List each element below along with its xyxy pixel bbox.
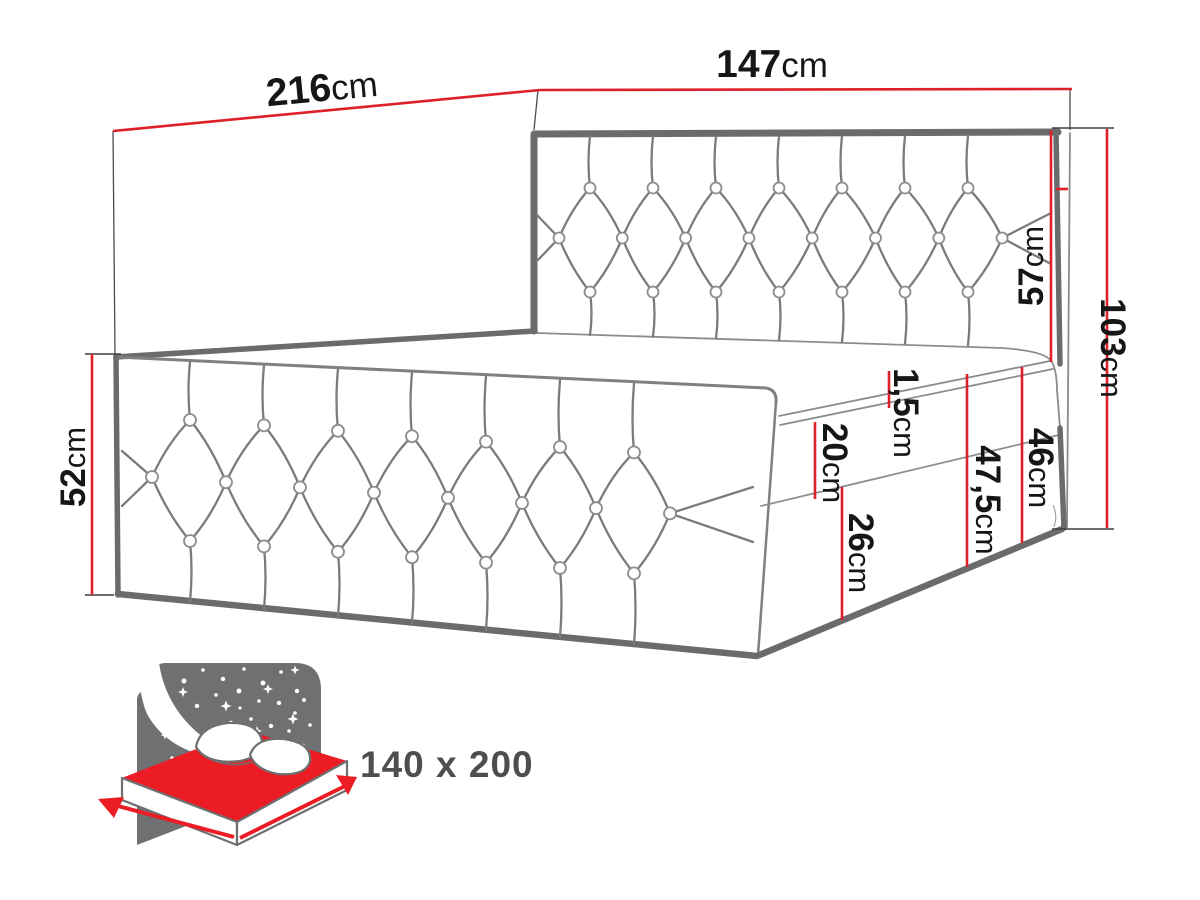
tuft-button	[837, 183, 848, 194]
tuft-seam-top	[633, 384, 635, 453]
tuft-button	[585, 287, 596, 298]
tuft-seam-top	[652, 136, 654, 188]
tuft-diamond-edge	[968, 188, 1002, 238]
tuft-diamond-edge	[374, 493, 412, 558]
side-panel-left-edge	[116, 356, 118, 595]
tuft-diamond-edge	[939, 188, 968, 238]
tuft-button	[628, 446, 640, 458]
tuft-button	[963, 183, 974, 194]
tuft-button	[554, 233, 565, 244]
dim-label-26: 26cm	[841, 513, 880, 593]
side-panel-top-edge	[116, 357, 776, 402]
star-dot	[201, 668, 205, 672]
star-dot	[277, 701, 281, 705]
star-dot	[242, 667, 246, 671]
star-dot	[176, 720, 180, 724]
tuft-button	[585, 183, 596, 194]
tuft-diamond-edge	[905, 238, 939, 292]
size-label: 140 x 200	[360, 744, 534, 785]
tuft-diamond-edge	[264, 425, 300, 487]
tuft-edge-stub	[670, 487, 753, 513]
tuft-diamond-edge	[264, 487, 300, 546]
dim-label-52: 52cm	[54, 427, 93, 507]
tuft-button	[258, 419, 270, 431]
tuft-seam-top	[589, 136, 591, 188]
tuft-button	[900, 287, 911, 298]
tuft-seam-top	[485, 376, 487, 441]
tuft-seam-top	[411, 373, 413, 436]
star-dot	[184, 741, 188, 745]
side-panel-right-edge	[758, 402, 776, 655]
tuft-seam-top	[263, 366, 265, 426]
star-dot	[261, 681, 266, 686]
tuft-diamond-edge	[226, 425, 264, 482]
tuft-button	[774, 183, 785, 194]
tuft-diamond-edge	[590, 238, 622, 292]
star-dot	[279, 670, 283, 674]
tuft-diamond-edge	[559, 188, 590, 238]
tuft-diamond-edge	[749, 188, 779, 238]
tuft-button	[294, 481, 306, 493]
headboard-bottom-edge	[536, 333, 1002, 348]
star-dot	[269, 724, 273, 728]
star-dot	[257, 699, 261, 703]
star-dot	[302, 698, 306, 702]
tuft-seam-bottom	[968, 292, 970, 345]
tuft-diamond-edge	[486, 503, 522, 563]
star-dot	[182, 679, 187, 684]
diagram-canvas: 216cm 147cm 57cm 103cm 52cm 20cm 1,5cm 4…	[0, 0, 1200, 900]
projection-mid	[534, 90, 538, 130]
tuft-diamond-edge	[876, 238, 906, 292]
tuft-button	[648, 183, 659, 194]
star-dot	[287, 729, 291, 733]
headboard-outline	[534, 132, 1058, 331]
tuft-edge-stub	[670, 513, 753, 542]
tuft-seam-top	[189, 362, 191, 420]
star-dot	[293, 711, 297, 715]
tuft-seam-bottom	[486, 563, 488, 630]
bed-drawing	[116, 132, 1070, 656]
tuft-diamond-edge	[686, 238, 716, 292]
tuft-diamond-edge	[226, 482, 264, 546]
tuft-button	[711, 183, 722, 194]
tuft-button	[480, 436, 492, 448]
tuft-button	[680, 233, 691, 244]
tuft-diamond-edge	[812, 188, 842, 238]
tuft-diamond-edge	[486, 442, 522, 503]
tuft-diamond-edge	[653, 188, 686, 238]
tuft-seam-bottom	[842, 292, 844, 342]
tuft-diamond-edge	[560, 508, 596, 568]
tuft-diamond-edge	[716, 238, 749, 292]
star-dot	[238, 706, 241, 709]
star-dot	[195, 704, 199, 708]
star-dot	[214, 693, 218, 697]
tuft-diamond-edge	[653, 238, 686, 292]
tuft-button	[332, 546, 344, 558]
bed-dimension-diagram: 216cm 147cm 57cm 103cm 52cm 20cm 1,5cm 4…	[0, 0, 1200, 900]
tuft-button	[184, 414, 196, 426]
tuft-seam-bottom	[560, 568, 562, 637]
tuft-button	[963, 287, 974, 298]
tuft-diamond-edge	[842, 188, 876, 238]
tuft-diamond-edge	[716, 188, 749, 238]
headboard-tufting	[537, 136, 1051, 345]
tuft-seam-top	[715, 136, 717, 188]
tuft-diamond-edge	[939, 238, 968, 292]
tuft-diamond-edge	[338, 493, 374, 552]
tuft-diamond-edge	[190, 420, 226, 482]
dim-line-147	[540, 89, 1072, 90]
tuft-diamond-edge	[686, 188, 716, 238]
tuft-diamond-edge	[968, 238, 1002, 292]
tuft-button	[900, 183, 911, 194]
tuft-diamond-edge	[300, 431, 338, 488]
star-dot	[249, 717, 253, 721]
tuft-button	[258, 540, 270, 552]
tuft-seam-bottom	[590, 292, 592, 335]
tuft-button	[711, 287, 722, 298]
tuft-button	[406, 430, 418, 442]
corner-fold-line	[1053, 505, 1056, 527]
tuft-diamond-edge	[152, 420, 190, 477]
dim-label-103: 103cm	[1093, 298, 1132, 398]
dim-label-57: 57cm	[1012, 226, 1051, 306]
tuft-seam-bottom	[412, 557, 414, 623]
tuft-button	[774, 287, 785, 298]
tuft-button	[146, 471, 158, 483]
tuft-seam-bottom	[264, 546, 266, 609]
star-dot	[166, 701, 170, 705]
tuft-diamond-edge	[559, 238, 590, 292]
tuft-diamond-edge	[779, 188, 812, 238]
mattress-back-edge	[116, 331, 535, 357]
tuft-button	[807, 233, 818, 244]
tuft-button	[933, 233, 944, 244]
tuft-button	[516, 497, 528, 509]
tuft-button	[220, 476, 232, 488]
tuft-diamond-edge	[190, 482, 226, 541]
tuft-button	[743, 233, 754, 244]
tuft-button	[648, 287, 659, 298]
tuft-diamond-edge	[842, 238, 876, 292]
tuft-diamond-edge	[300, 487, 338, 551]
tuft-diamond-edge	[374, 436, 412, 492]
tuft-seam-bottom	[338, 552, 340, 616]
tuft-button	[184, 535, 196, 547]
tuft-diamond-edge	[152, 477, 190, 541]
headboard-side-strip	[1067, 133, 1070, 527]
size-icon: 140 x 200	[98, 663, 534, 845]
tuft-seam-bottom	[190, 541, 192, 602]
dim-label-1-5: 1,5cm	[886, 368, 925, 458]
tuft-button	[368, 487, 380, 499]
tuft-seam-top	[841, 136, 843, 188]
tuft-button	[442, 492, 454, 504]
tuft-button	[617, 233, 628, 244]
tuft-button	[480, 557, 492, 569]
tuft-seam-bottom	[653, 292, 655, 337]
dim-label-47-5: 47,5cm	[968, 445, 1007, 554]
star-dot	[237, 689, 242, 694]
tuft-button	[664, 507, 676, 519]
tuft-button	[870, 233, 881, 244]
tuft-button	[554, 562, 566, 574]
tuft-seam-top	[778, 136, 780, 188]
tuft-button	[628, 567, 640, 579]
tuft-seam-bottom	[905, 292, 907, 344]
tuft-diamond-edge	[812, 238, 842, 292]
projection-left	[113, 131, 115, 355]
tuft-diamond-edge	[622, 238, 653, 292]
dimension-lines	[85, 89, 1114, 620]
tuft-diamond-edge	[905, 188, 939, 238]
tuft-seam-top	[559, 380, 561, 447]
tuft-diamond-edge	[522, 503, 560, 568]
tuft-diamond-edge	[412, 436, 448, 498]
tuft-button	[837, 287, 848, 298]
tuft-button	[332, 425, 344, 437]
tuft-diamond-edge	[622, 188, 653, 238]
tuft-diamond-edge	[560, 447, 596, 508]
tuft-diamond-edge	[634, 452, 670, 513]
tuft-diamond-edge	[412, 498, 448, 557]
tuft-seam-bottom	[779, 292, 781, 340]
tuft-diamond-edge	[448, 498, 486, 563]
dim-label-147: 147cm	[716, 43, 828, 86]
tuft-diamond-edge	[634, 513, 670, 573]
tuft-button	[554, 441, 566, 453]
tuft-seam-top	[337, 369, 339, 431]
tuft-button	[406, 551, 418, 563]
dim-label-46: 46cm	[1021, 428, 1060, 508]
tuft-diamond-edge	[596, 452, 634, 508]
tuft-diamond-edge	[448, 442, 486, 498]
star-dot	[308, 723, 312, 727]
tuft-diamond-edge	[596, 508, 634, 573]
tuft-diamond-edge	[338, 431, 374, 493]
tuft-seam-top	[904, 136, 906, 188]
tuft-seam-bottom	[634, 573, 636, 644]
tuft-diamond-edge	[749, 238, 779, 292]
tuft-seam-bottom	[716, 292, 718, 338]
star-dot	[295, 689, 299, 693]
tuft-button	[590, 502, 602, 514]
headboard-right-edge	[1056, 132, 1060, 364]
tuft-button	[997, 233, 1008, 244]
tuft-diamond-edge	[522, 447, 560, 503]
tuft-diamond-edge	[876, 188, 906, 238]
tuft-diamond-edge	[779, 238, 812, 292]
dim-label-20: 20cm	[815, 423, 854, 503]
star-dot	[221, 677, 225, 681]
tuft-seam-top	[967, 136, 969, 188]
tuft-diamond-edge	[590, 188, 622, 238]
